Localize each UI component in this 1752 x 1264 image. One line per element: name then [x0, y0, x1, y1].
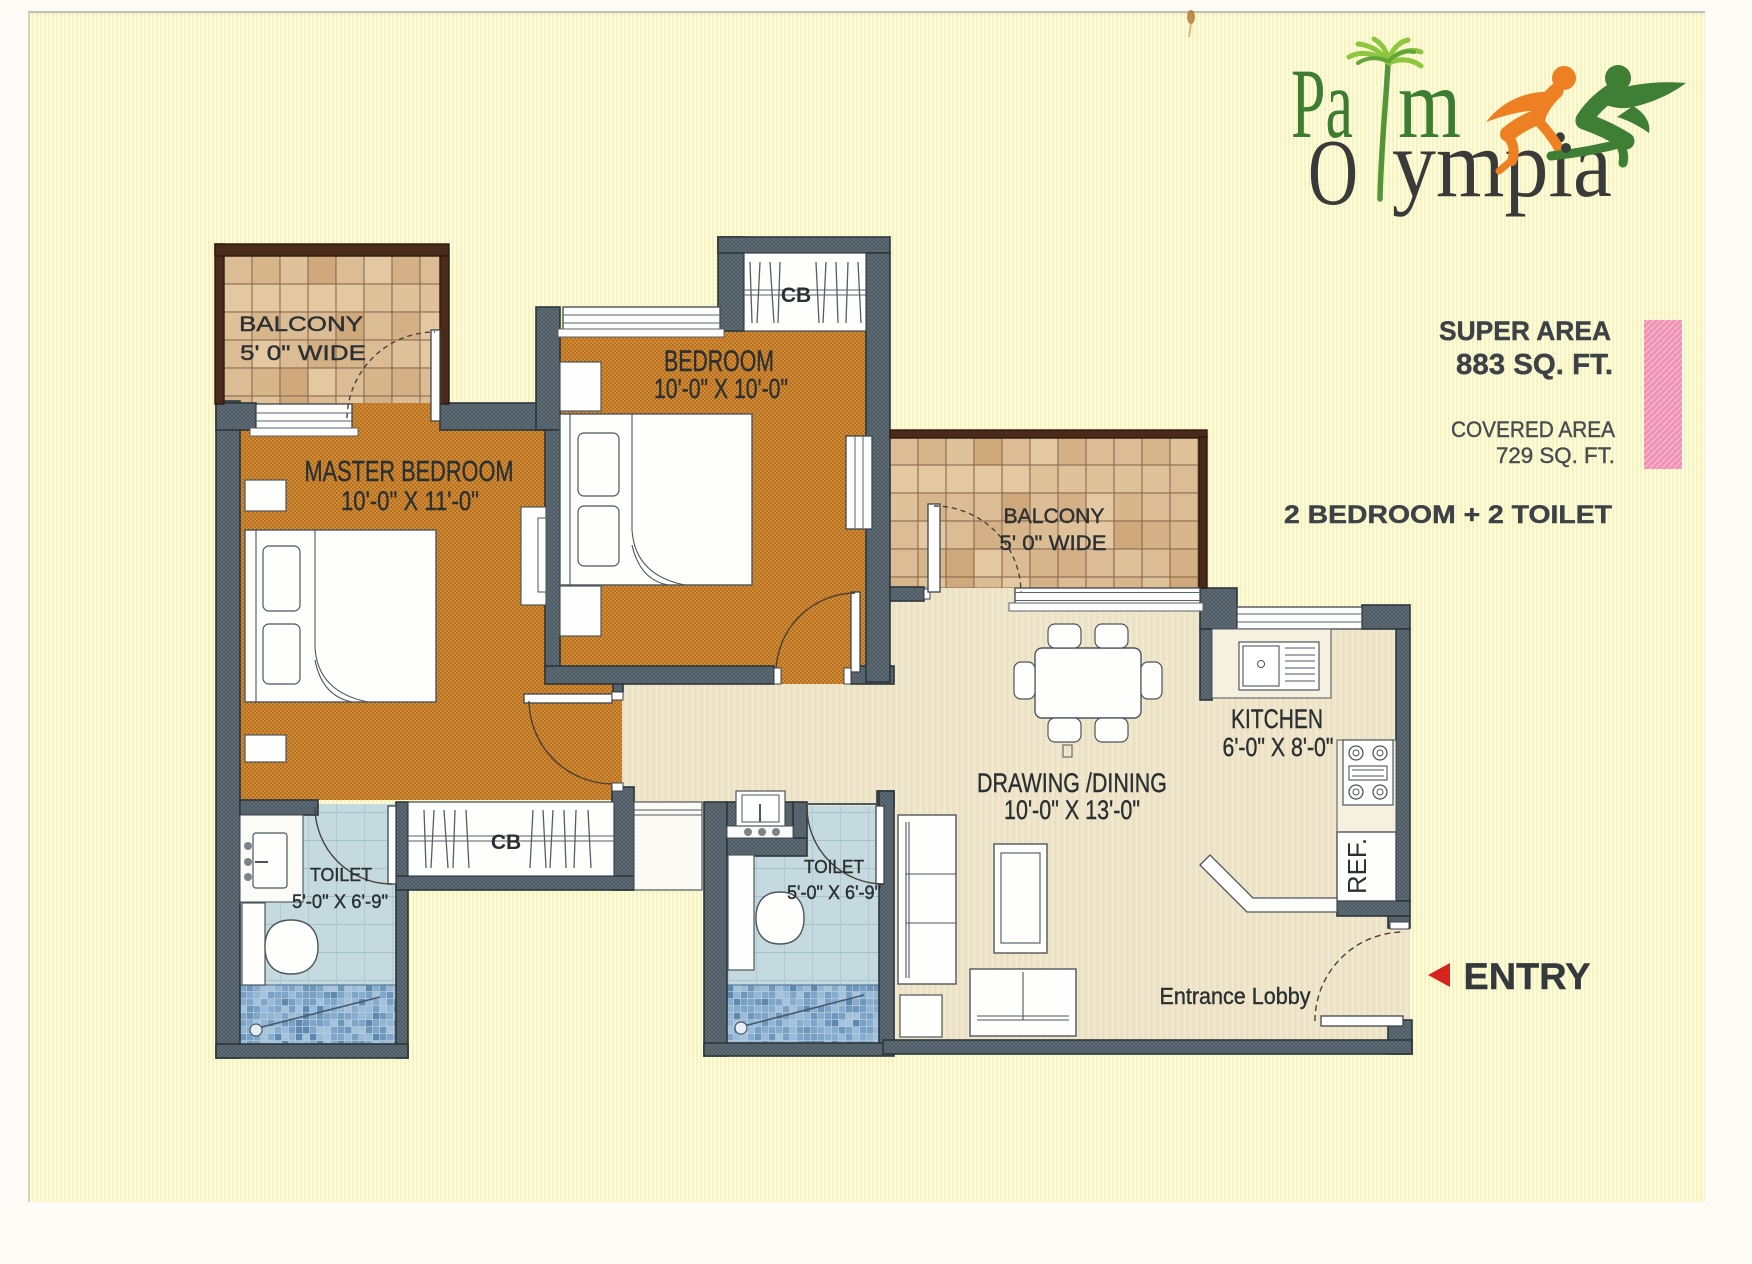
svg-text:BALCONY: BALCONY — [1004, 505, 1105, 528]
svg-text:729 SQ. FT.: 729 SQ. FT. — [1496, 443, 1615, 468]
svg-text:10'-0" X 11'-0": 10'-0" X 11'-0" — [341, 486, 479, 516]
svg-text:883 SQ. FT.: 883 SQ. FT. — [1456, 349, 1613, 381]
svg-text:TOILET: TOILET — [310, 865, 372, 885]
svg-text:TOILET: TOILET — [804, 857, 864, 877]
svg-text:DRAWING /DINING: DRAWING /DINING — [977, 768, 1167, 798]
svg-text:6'-0" X 8'-0": 6'-0" X 8'-0" — [1223, 732, 1334, 762]
svg-text:5' 0" WIDE: 5' 0" WIDE — [240, 342, 366, 365]
svg-text:5' 0" WIDE: 5' 0" WIDE — [1000, 532, 1107, 555]
svg-text:REF.: REF. — [1342, 838, 1372, 894]
svg-text:5'-0" X 6'-9": 5'-0" X 6'-9" — [787, 883, 881, 904]
svg-text:ENTRY: ENTRY — [1464, 956, 1591, 997]
svg-text:CB: CB — [491, 831, 521, 854]
svg-text:KITCHEN: KITCHEN — [1231, 704, 1323, 734]
svg-text:MASTER BEDROOM: MASTER BEDROOM — [305, 456, 514, 488]
svg-text:5'-0" X 6'-9": 5'-0" X 6'-9" — [292, 892, 388, 913]
svg-text:SUPER AREA: SUPER AREA — [1439, 316, 1611, 346]
svg-text:BALCONY: BALCONY — [239, 313, 363, 336]
svg-text:COVERED AREA: COVERED AREA — [1451, 417, 1615, 442]
svg-text:10'-0" X 13'-0": 10'-0" X 13'-0" — [1004, 795, 1140, 825]
svg-text:Entrance Lobby: Entrance Lobby — [1160, 983, 1311, 1009]
svg-text:2 BEDROOM + 2 TOILET: 2 BEDROOM + 2 TOILET — [1284, 501, 1612, 529]
svg-text:O: O — [1308, 121, 1358, 225]
svg-text:CB: CB — [781, 284, 811, 307]
svg-text:10'-0" X 10'-0": 10'-0" X 10'-0" — [654, 373, 788, 404]
